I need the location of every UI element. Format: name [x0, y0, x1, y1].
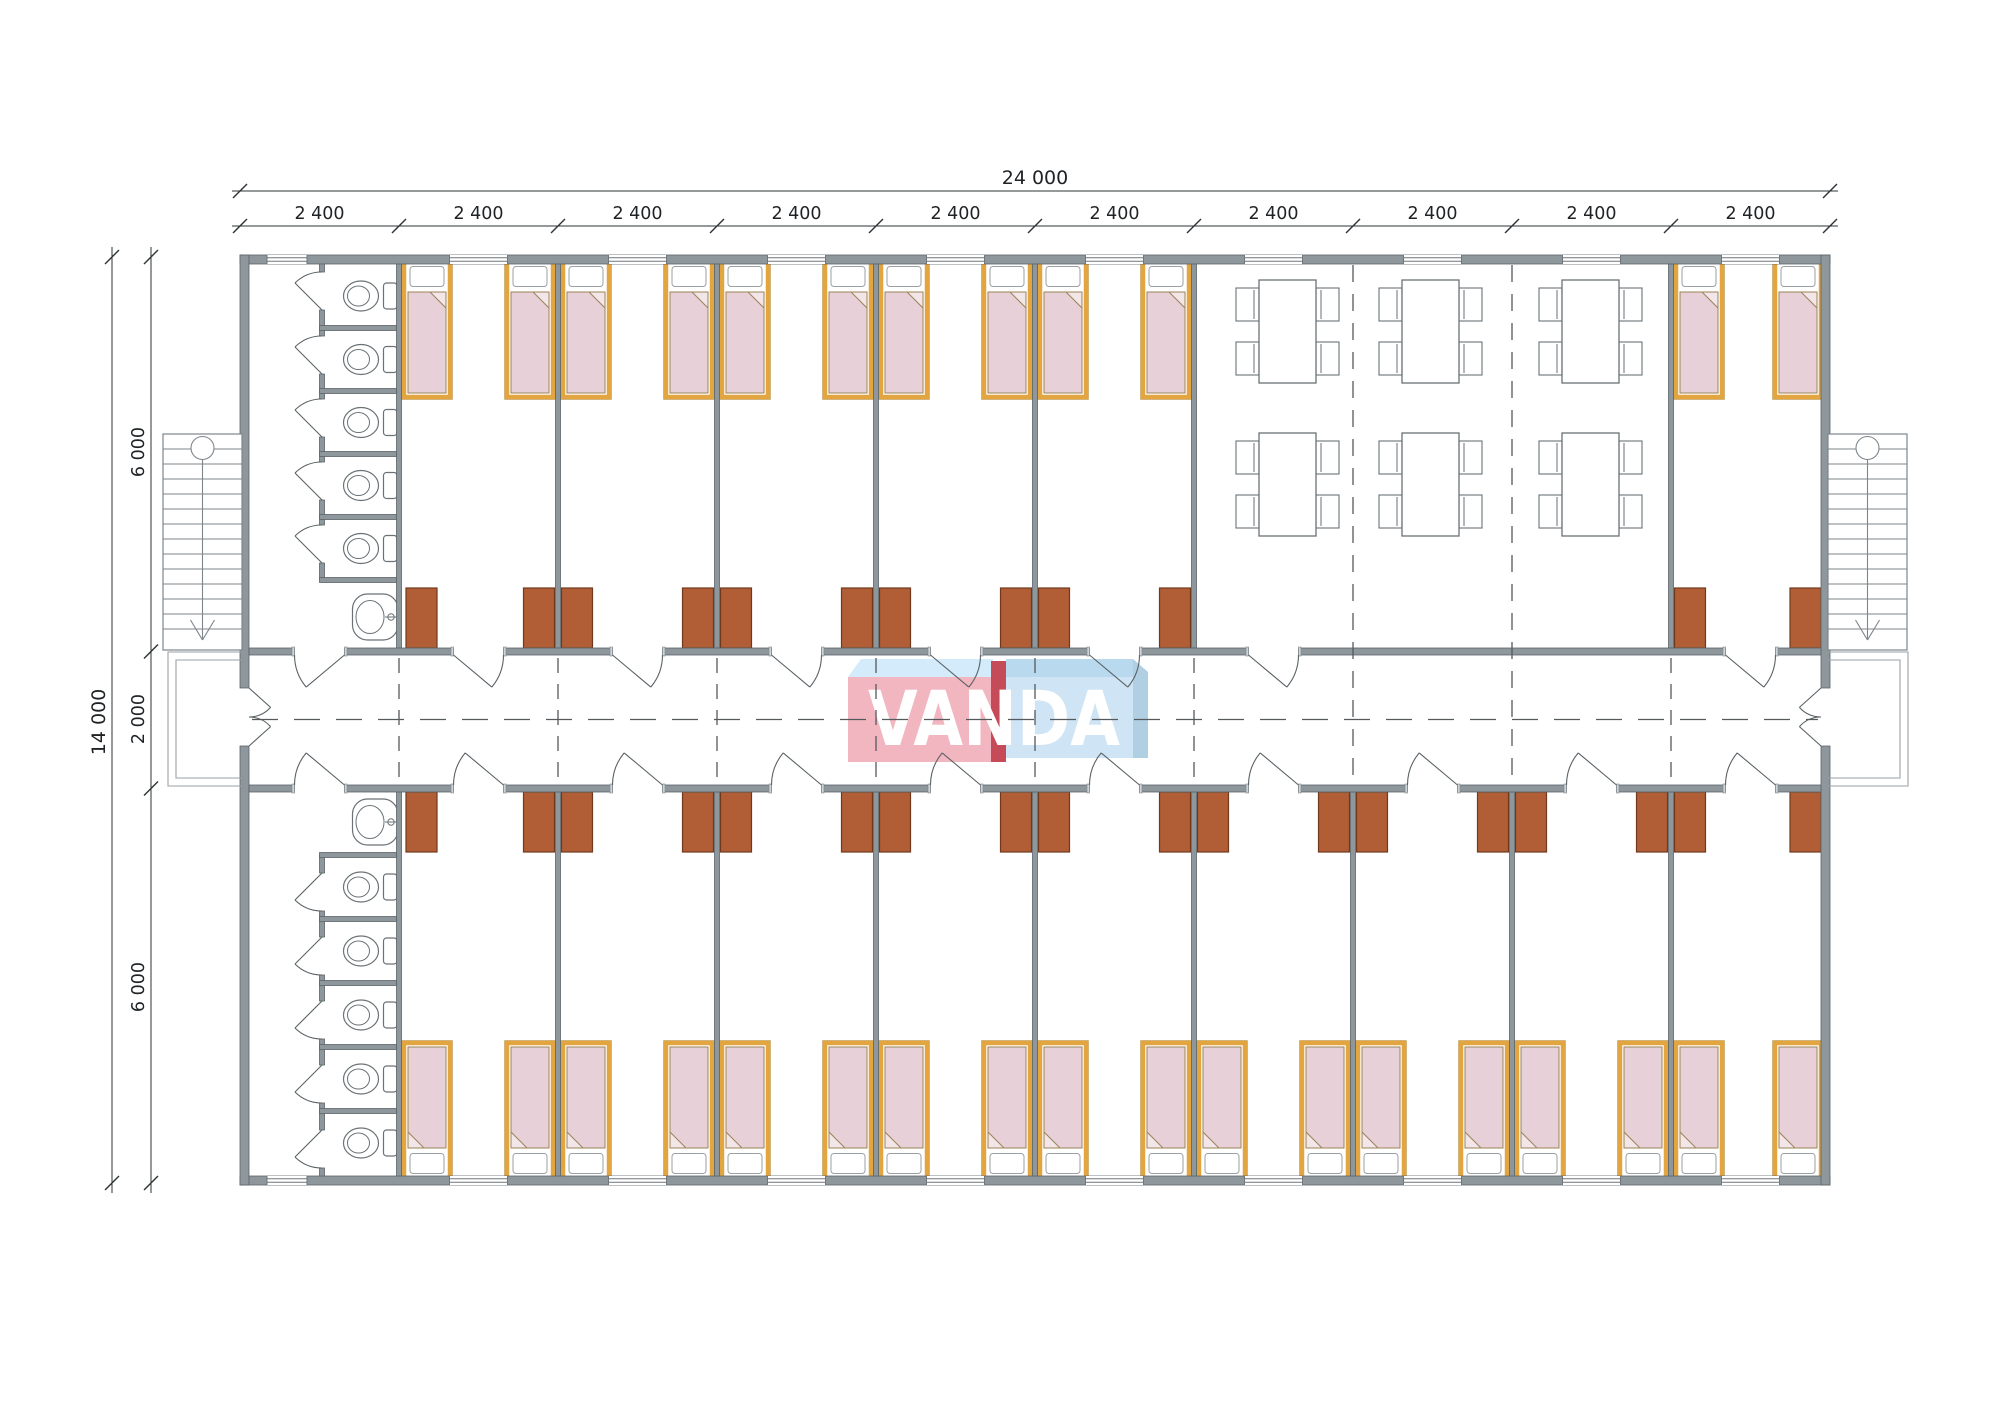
window	[768, 1176, 826, 1185]
stairs-right	[1828, 434, 1907, 650]
wardrobe	[406, 792, 437, 852]
window	[450, 255, 508, 264]
wardrobe	[1790, 792, 1821, 852]
wardrobe	[1637, 792, 1668, 852]
window	[1404, 1176, 1462, 1185]
toilet	[344, 534, 398, 564]
dim-label-module-width: 2 400	[771, 204, 821, 224]
bed	[982, 1041, 1032, 1181]
bed	[1459, 1041, 1509, 1181]
bed	[505, 1041, 555, 1181]
wardrobe	[406, 588, 437, 648]
window	[609, 1176, 667, 1185]
window	[927, 1176, 985, 1185]
bed	[982, 259, 1032, 399]
wardrobe	[1516, 792, 1547, 852]
bed	[1300, 1041, 1350, 1181]
bed	[1141, 259, 1191, 399]
bed	[1356, 1041, 1406, 1181]
wardrobe	[1160, 588, 1191, 648]
bed	[1197, 1041, 1247, 1181]
bed	[402, 259, 452, 399]
wardrobe	[842, 588, 873, 648]
wardrobe	[1198, 792, 1229, 852]
bed	[1038, 259, 1088, 399]
toilet	[344, 936, 398, 966]
dim-label-module-width: 2 400	[1089, 204, 1139, 224]
bed	[823, 259, 873, 399]
wardrobe	[524, 588, 555, 648]
bed	[505, 259, 555, 399]
sink	[353, 594, 399, 640]
dim-label-module-width: 2 400	[1566, 204, 1616, 224]
bed	[1674, 1041, 1724, 1181]
bed	[1515, 1041, 1565, 1181]
wardrobe	[524, 792, 555, 852]
bed	[879, 1041, 929, 1181]
stair-start-marker	[1856, 437, 1879, 460]
toilet	[344, 471, 398, 501]
toilet	[344, 872, 398, 902]
bed	[1773, 1041, 1823, 1181]
wardrobe	[1001, 588, 1032, 648]
window	[927, 255, 985, 264]
logo-watermark: VANDA	[848, 659, 1148, 763]
dim-label-upper-rooms-depth: 6 000	[129, 427, 149, 477]
window	[450, 1176, 508, 1185]
wardrobe	[1478, 792, 1509, 852]
wardrobe	[721, 588, 752, 648]
window	[1086, 1176, 1144, 1185]
wardrobe	[1357, 792, 1388, 852]
stair-start-marker	[191, 437, 214, 460]
wardrobe	[1790, 588, 1821, 648]
bed	[1141, 1041, 1191, 1181]
dim-label-total-width: 24 000	[1002, 167, 1068, 189]
wardrobe	[562, 588, 593, 648]
wardrobe	[1675, 588, 1706, 648]
wardrobe	[562, 792, 593, 852]
window	[267, 255, 307, 264]
bed	[664, 259, 714, 399]
toilet	[344, 1064, 398, 1094]
dim-label-module-width: 2 400	[294, 204, 344, 224]
wardrobe	[1160, 792, 1191, 852]
wardrobe	[1039, 588, 1070, 648]
wardrobe	[683, 792, 714, 852]
wardrobe	[880, 792, 911, 852]
toilet	[344, 281, 398, 311]
sink	[353, 799, 399, 845]
wardrobe	[721, 792, 752, 852]
dim-label-module-width: 2 400	[930, 204, 980, 224]
window	[768, 255, 826, 264]
bed	[664, 1041, 714, 1181]
bed	[720, 1041, 770, 1181]
bed	[402, 1041, 452, 1181]
window	[1245, 255, 1303, 264]
dim-label-corridor-width: 2 000	[129, 694, 149, 744]
dim-label-lower-rooms-depth: 6 000	[129, 962, 149, 1012]
stairs-left	[163, 434, 242, 650]
toilet	[344, 408, 398, 438]
window	[267, 1176, 307, 1185]
wardrobe	[1039, 792, 1070, 852]
wardrobe	[1001, 792, 1032, 852]
window	[1086, 255, 1144, 264]
window	[1563, 1176, 1621, 1185]
bed	[823, 1041, 873, 1181]
wardrobe	[1675, 792, 1706, 852]
window	[609, 255, 667, 264]
bed	[561, 259, 611, 399]
window	[1404, 255, 1462, 264]
dim-label-total-height: 14 000	[88, 689, 110, 755]
bed	[879, 259, 929, 399]
dim-label-module-width: 2 400	[1407, 204, 1457, 224]
bed	[561, 1041, 611, 1181]
logo-text: VANDA	[868, 674, 1120, 763]
bed	[720, 259, 770, 399]
toilet	[344, 1128, 398, 1158]
bed	[1773, 259, 1823, 399]
window	[1245, 1176, 1303, 1185]
wardrobe	[1319, 792, 1350, 852]
window	[1722, 255, 1780, 264]
bed	[1674, 259, 1724, 399]
toilet	[344, 345, 398, 375]
dim-label-module-width: 2 400	[453, 204, 503, 224]
wardrobe	[842, 792, 873, 852]
floor-plan-svg: VANDA24 0002 4002 4002 4002 4002 4002 40…	[0, 0, 2000, 1415]
wardrobe	[880, 588, 911, 648]
floor-plan-page: VANDA24 0002 4002 4002 4002 4002 4002 40…	[0, 0, 2000, 1415]
window	[1563, 255, 1621, 264]
dim-label-module-width: 2 400	[612, 204, 662, 224]
toilet	[344, 1000, 398, 1030]
window	[1722, 1176, 1780, 1185]
dim-label-module-width: 2 400	[1248, 204, 1298, 224]
bed	[1618, 1041, 1668, 1181]
dim-label-module-width: 2 400	[1725, 204, 1775, 224]
wardrobe	[683, 588, 714, 648]
bed	[1038, 1041, 1088, 1181]
